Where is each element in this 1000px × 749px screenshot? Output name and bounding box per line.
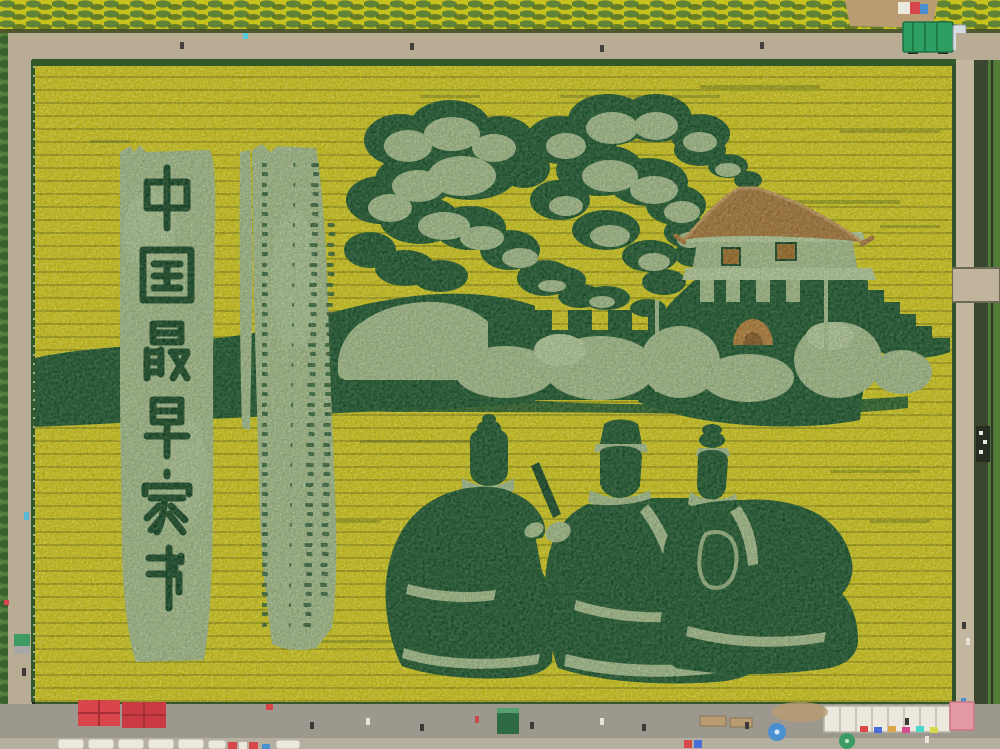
right-footpath xyxy=(956,60,974,749)
fence-line xyxy=(0,29,1000,33)
canal-bridge xyxy=(952,268,1000,302)
field-top-hedge xyxy=(0,59,1000,66)
green-booth xyxy=(497,708,519,734)
right-green-rows xyxy=(988,60,1000,749)
market-table xyxy=(700,716,726,726)
pink-tent xyxy=(950,702,974,730)
aerial-photo-stage: 中 国 最 早 家 书 wooden-slip letter with xyxy=(0,0,1000,749)
grain-light xyxy=(35,66,952,702)
dirt-patch-bottom xyxy=(772,702,828,722)
white-canopy-row xyxy=(824,702,974,732)
field-art-photo: 中 国 最 早 家 书 wooden-slip letter with xyxy=(0,0,1000,749)
canal xyxy=(974,60,988,749)
top-road xyxy=(0,33,1000,59)
left-green-texture xyxy=(0,33,8,749)
